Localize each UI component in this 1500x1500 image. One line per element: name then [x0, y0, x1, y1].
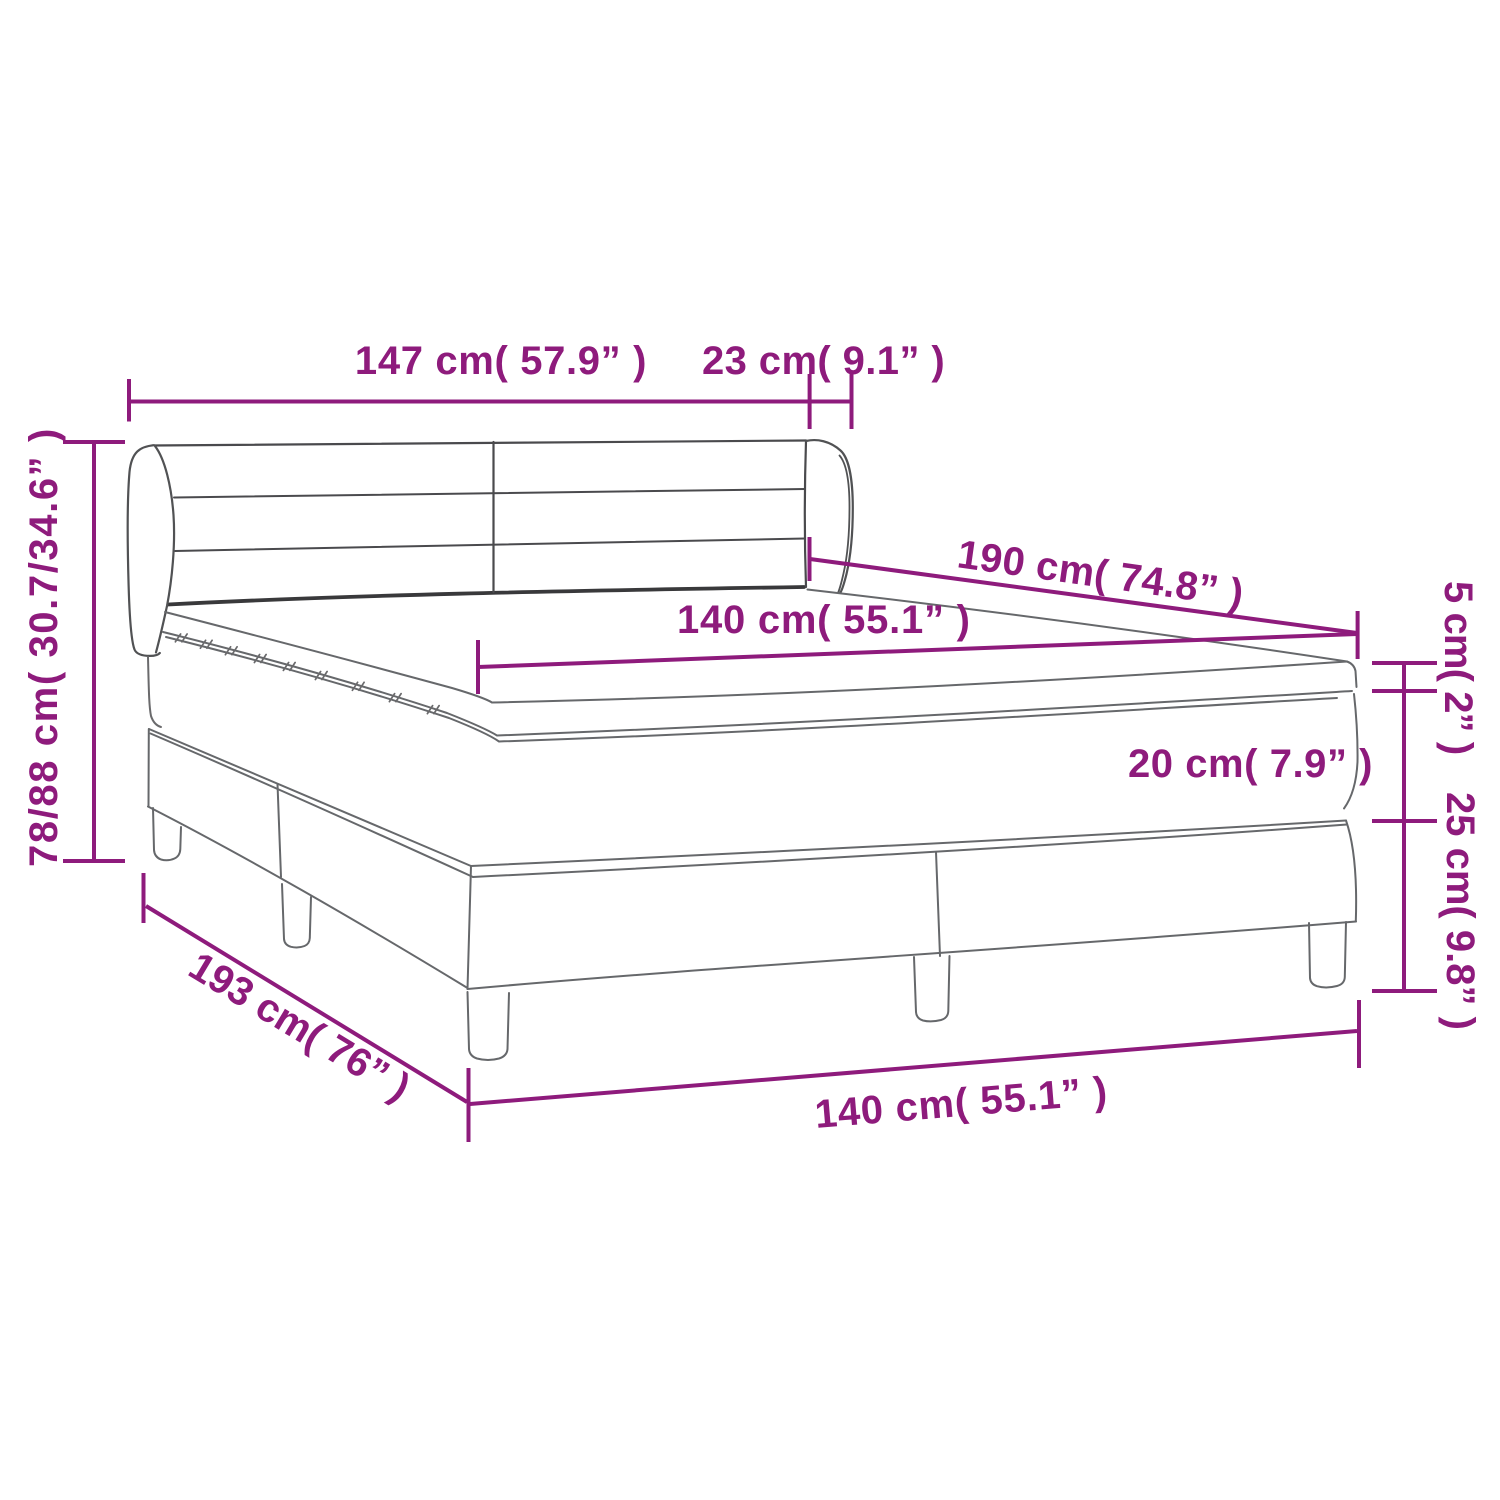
svg-text:5 cm( 2” ): 5 cm( 2” )	[1436, 581, 1480, 754]
svg-text:147 cm( 57.9” ): 147 cm( 57.9” )	[355, 339, 647, 383]
svg-text:23 cm( 9.1” ): 23 cm( 9.1” )	[702, 339, 945, 383]
svg-text:25 cm( 9.8” ): 25 cm( 9.8” )	[1438, 792, 1482, 1030]
svg-text:140 cm( 55.1” ): 140 cm( 55.1” )	[677, 598, 971, 642]
svg-text:78/88 cm( 30.7/34.6” ): 78/88 cm( 30.7/34.6” )	[22, 427, 66, 867]
svg-text:20 cm( 7.9” ): 20 cm( 7.9” )	[1128, 742, 1373, 786]
